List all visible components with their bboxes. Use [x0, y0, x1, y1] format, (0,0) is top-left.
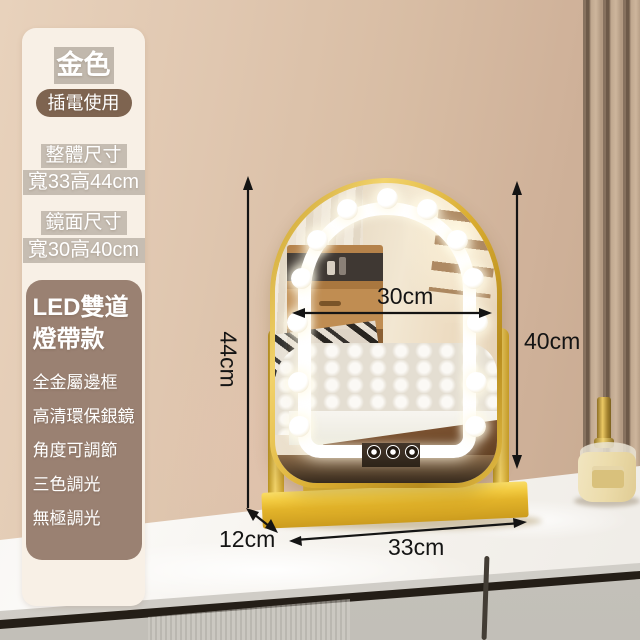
mirror-glass: [275, 183, 497, 483]
led-bulb: [417, 199, 438, 220]
vanity-mirror-frame: [270, 178, 502, 488]
led-bulb: [465, 416, 486, 437]
wall-slat-panel: [583, 0, 640, 475]
overall-size-value: 寬33高44cm: [23, 170, 145, 195]
led-bulb: [287, 312, 308, 333]
feature-item: 無極調光: [33, 502, 142, 536]
overall-height-label: 44cm: [215, 331, 242, 387]
feature-box: LED雙道 燈帶款 全金屬邊框 高清環保銀鏡 角度可調節 三色調光 無極調光: [26, 280, 142, 560]
led-bulb: [288, 372, 309, 393]
feature-item: 三色調光: [33, 468, 142, 502]
led-bulb: [337, 199, 358, 220]
feature-item: 全金屬邊框: [33, 366, 142, 400]
feature-box-title-line2: 燈帶款: [33, 324, 142, 356]
product-image: 金色 插電使用 整體尺寸 寬33高44cm 鏡面尺寸 寬30高40cm LED雙…: [0, 0, 640, 640]
led-bulb: [307, 230, 328, 251]
feature-item: 高清環保銀鏡: [33, 400, 142, 434]
mirror-width-label: 30cm: [377, 283, 433, 310]
color-option-label: 金色: [54, 47, 114, 84]
spec-panel: 金色 插電使用 整體尺寸 寬33高44cm 鏡面尺寸 寬30高40cm LED雙…: [22, 28, 145, 606]
feature-box-title-line1: LED雙道: [33, 292, 142, 324]
led-bulb: [447, 230, 468, 251]
perfume-bottle-label: [592, 466, 624, 488]
power-icon: [386, 445, 400, 459]
led-bulb: [467, 312, 488, 333]
overall-size-title: 整體尺寸: [41, 144, 127, 168]
led-bulb: [466, 372, 487, 393]
led-bulb: [291, 268, 312, 289]
led-bulb: [463, 268, 484, 289]
mirror-size-value: 寬30高40cm: [23, 238, 145, 263]
mirror-height-label: 40cm: [524, 328, 580, 355]
mirror-size-title: 鏡面尺寸: [41, 211, 127, 235]
feature-item: 角度可調節: [33, 434, 142, 468]
brightness-icon: [367, 445, 381, 459]
color-mode-icon: [405, 445, 419, 459]
led-bulb: [289, 416, 310, 437]
power-type-badge: 插電使用: [36, 89, 132, 117]
base-depth-label: 12cm: [219, 526, 275, 553]
base-width-label: 33cm: [388, 534, 444, 561]
led-bulb: [377, 188, 398, 209]
